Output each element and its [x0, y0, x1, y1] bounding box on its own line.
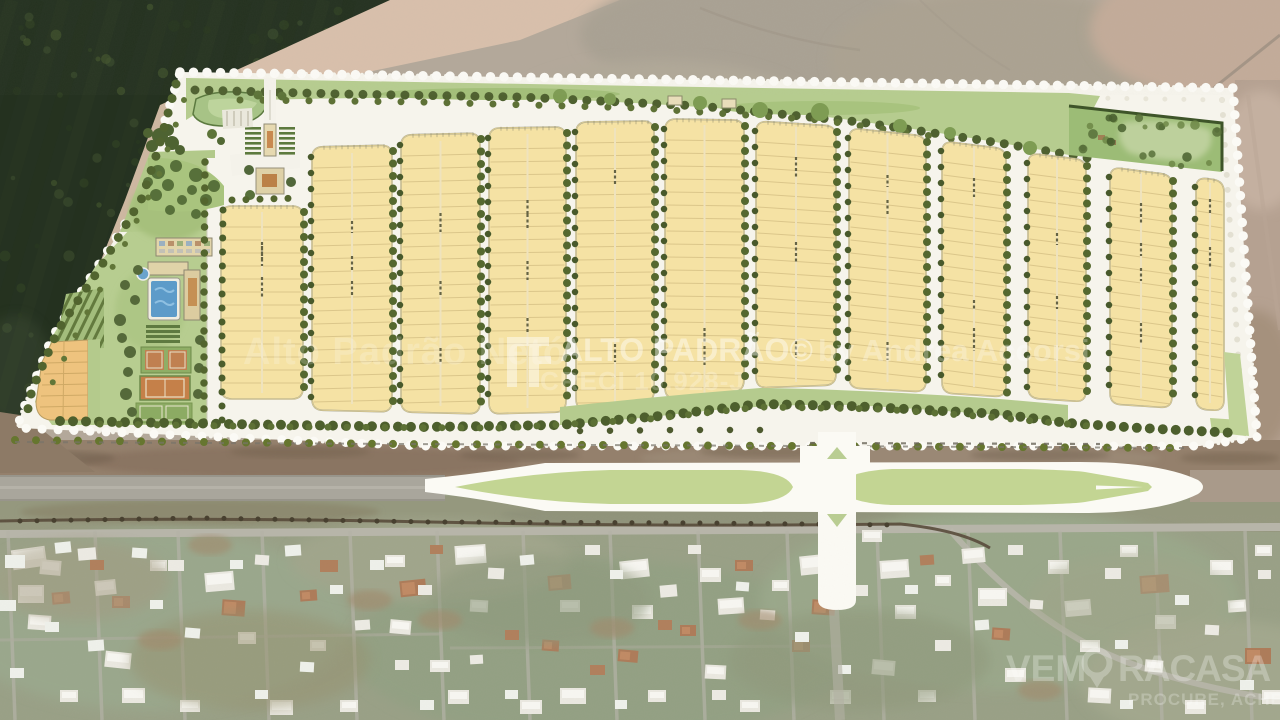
svg-text:by Andrea Accorsi: by Andrea Accorsi	[818, 333, 1090, 368]
svg-text:ALTO PADRÃO©: ALTO PADRÃO©	[560, 332, 813, 368]
svg-text:CRECI 10.928-J: CRECI 10.928-J	[540, 366, 745, 396]
